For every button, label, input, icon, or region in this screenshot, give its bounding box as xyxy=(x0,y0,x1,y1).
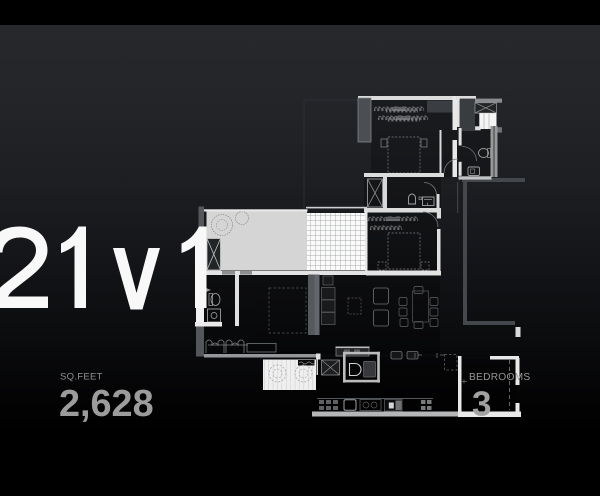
svg-text:3: 3 xyxy=(472,385,491,424)
svg-text:BEDROOMS: BEDROOMS xyxy=(469,372,530,383)
svg-text:SQ.FEET: SQ.FEET xyxy=(60,372,103,383)
svg-text:2,628: 2,628 xyxy=(59,383,154,425)
